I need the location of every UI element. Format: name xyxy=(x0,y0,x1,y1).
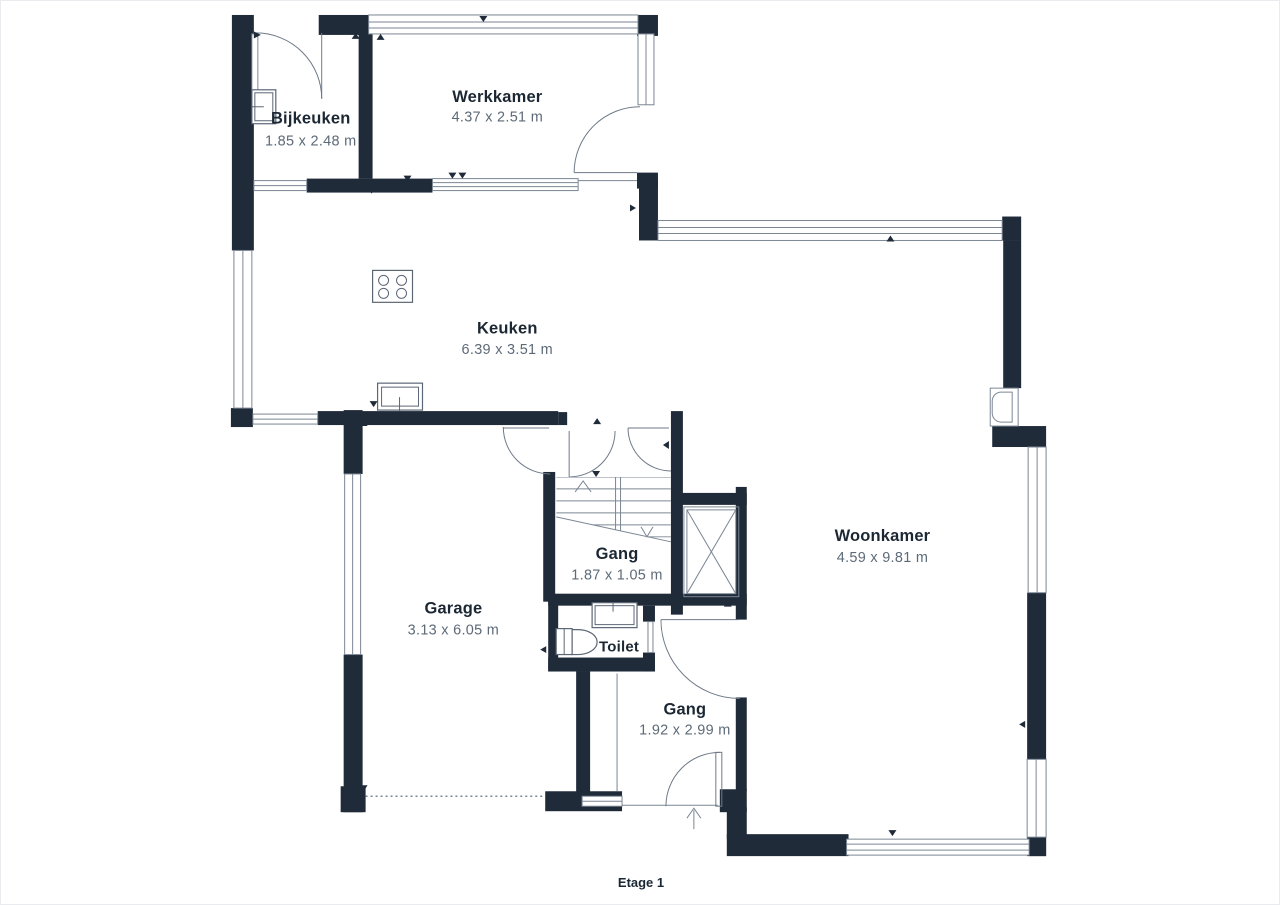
wall-segment xyxy=(673,493,747,505)
wall-segment xyxy=(232,15,254,250)
wall-segment xyxy=(548,658,655,672)
window xyxy=(345,474,361,655)
room-dim-gang-boven: 1.87 x 1.05 m xyxy=(571,568,662,584)
room-label-keuken: Keuken xyxy=(477,319,538,337)
door-arc-keuken-garage xyxy=(503,427,550,474)
window xyxy=(1027,759,1046,837)
wall-segment xyxy=(1027,593,1046,760)
entrance-arrow xyxy=(687,808,701,829)
window xyxy=(369,15,638,34)
room-dim-garage: 3.13 x 6.05 m xyxy=(408,623,499,639)
toilet-icon xyxy=(556,629,597,655)
room-label-garage: Garage xyxy=(424,600,482,618)
wall-segment xyxy=(992,426,1046,447)
wall-segment xyxy=(639,179,658,241)
wall-segment xyxy=(736,697,747,791)
room-label-toilet: Toilet xyxy=(599,639,639,656)
wall-segment xyxy=(1029,837,1046,856)
void-shaft xyxy=(684,507,739,597)
floorplan-drawing: Bijkeuken 1.85 x 2.48 m Werkkamer 4.37 x… xyxy=(1,1,1279,904)
wall-segment xyxy=(543,472,555,602)
window xyxy=(234,250,252,408)
window xyxy=(847,839,1030,855)
room-dim-werkkamer: 4.37 x 2.51 m xyxy=(452,110,543,126)
window xyxy=(658,221,1002,241)
wall-segment xyxy=(359,31,373,179)
window xyxy=(638,34,654,105)
stove-icon xyxy=(373,270,413,302)
wall-segment xyxy=(341,786,366,812)
door-arc-gang-landing xyxy=(628,428,671,471)
wall-segment xyxy=(346,411,559,425)
window xyxy=(582,796,622,806)
wall-segment xyxy=(671,411,683,615)
door-arc-gang-woonkamer xyxy=(661,620,740,699)
door-arc-werkkamer-exterior xyxy=(574,107,640,173)
window xyxy=(253,414,318,424)
room-label-bijkeuken: Bijkeuken xyxy=(271,110,351,128)
window xyxy=(432,179,578,191)
kitchen-sink-icon xyxy=(378,383,423,411)
wall-segment xyxy=(1002,217,1021,241)
wall-segment xyxy=(231,408,253,427)
window xyxy=(252,34,258,91)
room-label-woonkamer: Woonkamer xyxy=(835,527,931,545)
stairs-up-arrow xyxy=(575,481,591,492)
room-dim-bijkeuken: 1.85 x 2.48 m xyxy=(265,134,356,150)
room-label-werkkamer: Werkkamer xyxy=(452,88,543,106)
door-arc-entrance xyxy=(666,752,722,806)
wall-segment xyxy=(643,606,655,622)
door-toilet-closed xyxy=(648,622,653,653)
room-dim-gang-entree: 1.92 x 2.99 m xyxy=(639,722,730,738)
washbasin-icon xyxy=(592,603,637,628)
floorplan-canvas: Bijkeuken 1.85 x 2.48 m Werkkamer 4.37 x… xyxy=(0,0,1280,905)
window xyxy=(1028,447,1046,593)
wall-segment xyxy=(637,15,658,36)
room-dim-keuken: 6.39 x 3.51 m xyxy=(462,342,553,358)
wall-segment xyxy=(727,807,747,839)
room-label-gang-entree: Gang xyxy=(663,700,706,718)
room-label-gang-boven: Gang xyxy=(596,545,639,563)
floor-label: Etage 1 xyxy=(618,875,664,890)
room-dim-woonkamer: 4.59 x 9.81 m xyxy=(837,550,928,566)
wall-segment xyxy=(548,594,747,606)
stairs xyxy=(556,477,671,542)
wall-segment xyxy=(576,672,590,793)
door-arc-keuken-gang xyxy=(569,431,615,477)
wall-segment xyxy=(558,412,567,425)
radiator-icon xyxy=(990,388,1018,426)
window xyxy=(254,181,307,191)
door-arc-bijkeuken xyxy=(256,33,322,99)
wall-segment xyxy=(1003,240,1021,388)
